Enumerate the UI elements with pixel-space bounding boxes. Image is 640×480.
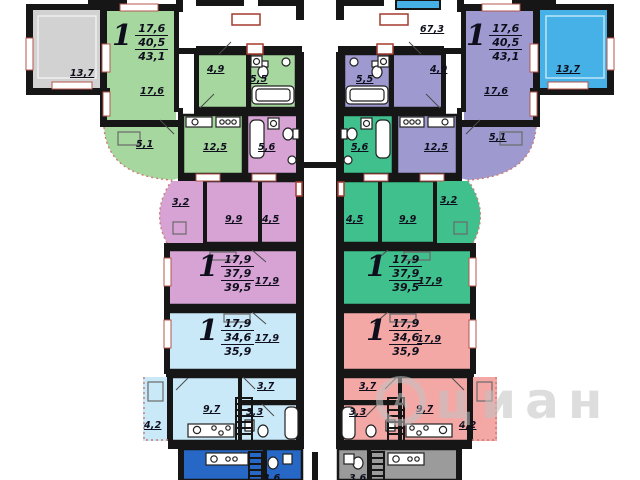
room-area-label: 17,9 bbox=[418, 276, 442, 287]
living-area: 17,9 bbox=[389, 317, 422, 331]
rooms-count: 1 bbox=[366, 315, 386, 345]
sink bbox=[344, 156, 352, 164]
area: 34,6 bbox=[221, 331, 254, 345]
sink bbox=[288, 156, 296, 164]
room-area-label: 4,9 bbox=[430, 64, 447, 75]
apartment-info-bl: 1 17,9 34,6 35,9 bbox=[198, 315, 254, 359]
balcony-right-area-label: 13,7 bbox=[556, 64, 580, 75]
toilet bbox=[372, 66, 382, 78]
total-area: 35,9 bbox=[221, 345, 254, 358]
room-area-label: 4,5 bbox=[346, 214, 363, 225]
toilet bbox=[366, 425, 376, 437]
apartment-info-ml: 1 17,9 37,9 39,5 bbox=[198, 251, 254, 295]
room-area-label: 4,9 bbox=[207, 64, 224, 75]
sink bbox=[282, 58, 290, 66]
room-area-label: 9,9 bbox=[399, 214, 416, 225]
room-hall-tr bbox=[392, 54, 444, 108]
balcony-left-area-label: 13,7 bbox=[70, 68, 94, 79]
room-area-label: 17,6 bbox=[484, 86, 508, 97]
room-area-label: 3,3 bbox=[349, 407, 366, 418]
rooms bbox=[30, 8, 610, 480]
apartment-info-br: 1 17,9 34,6 35,9 bbox=[366, 315, 422, 359]
bathtub bbox=[376, 120, 390, 158]
rooms-count: 1 bbox=[366, 251, 386, 281]
room-area-label: 9,9 bbox=[225, 214, 242, 225]
total-area: 39,5 bbox=[221, 281, 254, 294]
bathtub bbox=[285, 407, 298, 439]
room-area-label: 5,5 bbox=[356, 74, 373, 85]
room-area-label: 17,9 bbox=[255, 333, 279, 344]
toilet bbox=[283, 128, 293, 140]
living-area: 17,6 bbox=[489, 22, 522, 36]
rooms-count: 1 bbox=[466, 20, 486, 50]
room-area-label: 17,9 bbox=[417, 334, 441, 345]
room-area-label: 5,5 bbox=[250, 74, 267, 85]
room-area-label: 4,5 bbox=[262, 214, 279, 225]
room-area-label: 3,7 bbox=[257, 381, 274, 392]
room-area-label: 12,5 bbox=[424, 142, 448, 153]
room-loggia-bl bbox=[143, 377, 170, 441]
room-loggia-tl bbox=[104, 127, 180, 180]
room-area-label: 17,6 bbox=[140, 86, 164, 97]
apartment-info-tl: 1 17,6 40,5 43,1 bbox=[112, 20, 168, 64]
area: 40,5 bbox=[489, 36, 522, 50]
living-area: 17,6 bbox=[135, 22, 168, 36]
total-area: 43,1 bbox=[135, 50, 168, 63]
living-area: 17,9 bbox=[221, 317, 254, 331]
corridor-strip-right bbox=[444, 8, 462, 112]
apartment-info-mr: 1 17,9 37,9 39,5 bbox=[366, 251, 422, 295]
sink bbox=[344, 454, 354, 464]
total-area: 43,1 bbox=[489, 50, 522, 63]
room-area-label: 4,2 bbox=[144, 420, 161, 431]
kitchen-counter bbox=[186, 117, 212, 127]
room-area-label: 5,6 bbox=[351, 142, 368, 153]
room-area-label: 17,9 bbox=[255, 276, 279, 287]
cutoff-balcony-top bbox=[396, 0, 440, 9]
room-kitchen-ml bbox=[205, 181, 260, 243]
room-area-label: 5,6 bbox=[258, 142, 275, 153]
toilet bbox=[258, 425, 268, 437]
living-area: 17,9 bbox=[389, 253, 422, 267]
room-balcony-right bbox=[538, 8, 610, 88]
rooms-count: 1 bbox=[198, 251, 218, 281]
toilet bbox=[347, 128, 357, 140]
room-area-label: 3,2 bbox=[440, 195, 457, 206]
sink bbox=[193, 426, 200, 433]
floorplan-screenshot: 13,7 13,7 67,3 1 17,6 40,5 43,1 1 17,6 4… bbox=[0, 0, 640, 480]
corridor-strip-left bbox=[178, 8, 196, 112]
area: 37,9 bbox=[221, 267, 254, 281]
lobby-area-label: 67,3 bbox=[420, 24, 444, 35]
room-area-label-partial: 3,6 bbox=[349, 473, 366, 480]
room-area-label: 3,7 bbox=[359, 381, 376, 392]
room-area-label: 5,1 bbox=[136, 139, 153, 150]
area: 40,5 bbox=[135, 36, 168, 50]
room-area-label: 5,1 bbox=[489, 132, 506, 143]
room-area-label: 3,2 bbox=[172, 197, 189, 208]
floorplan-svg bbox=[0, 0, 640, 480]
kitchen-counter bbox=[428, 117, 454, 127]
sink bbox=[439, 426, 446, 433]
room-area-label: 12,5 bbox=[203, 142, 227, 153]
living-area: 17,9 bbox=[221, 253, 254, 267]
room-area-label: 4,2 bbox=[459, 420, 476, 431]
room-area-label-partial: 3,6 bbox=[263, 473, 280, 480]
room-area-label: 9,7 bbox=[416, 404, 433, 415]
total-area: 35,9 bbox=[389, 345, 422, 358]
room-kitchen-mr bbox=[380, 181, 435, 243]
room-hall-tl bbox=[196, 54, 248, 108]
room-area-label: 9,7 bbox=[203, 404, 220, 415]
rooms-count: 1 bbox=[112, 20, 132, 50]
sink bbox=[350, 58, 358, 66]
sink bbox=[283, 454, 292, 464]
apartment-info-tr: 1 17,6 40,5 43,1 bbox=[466, 20, 522, 64]
room-loggia-br bbox=[470, 377, 497, 441]
room-area-label: 3,3 bbox=[246, 407, 263, 418]
toilet bbox=[268, 457, 278, 469]
rooms-count: 1 bbox=[198, 315, 218, 345]
